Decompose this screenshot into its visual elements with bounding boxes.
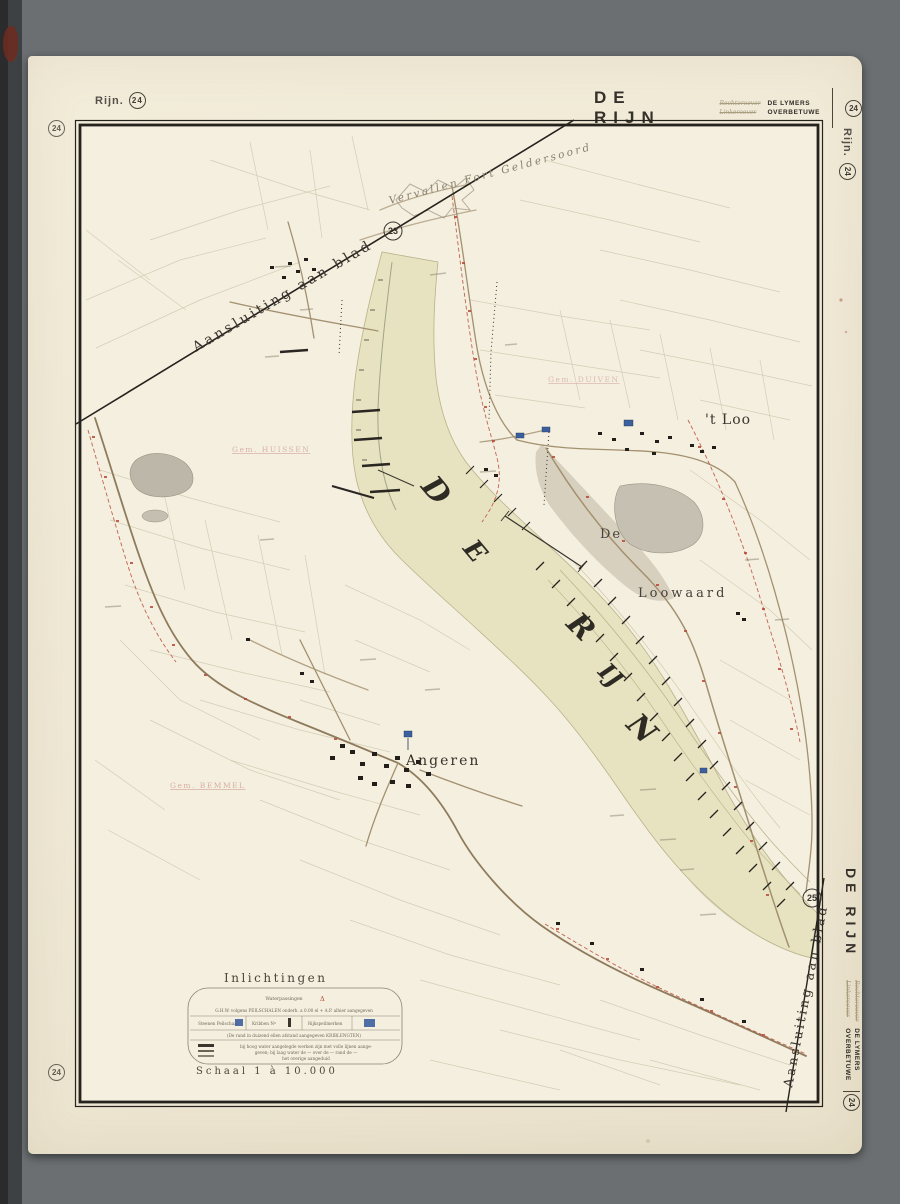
legend-row2: G.H.W. volgens PEILSCHALEN onderh. a 0.0… [215, 1008, 373, 1013]
legend-triangle-symbol: Δ [320, 995, 325, 1003]
place-label-de: De [600, 527, 622, 542]
map-canvas: Aansluiting aan blad 23 Aansluiting aan … [0, 0, 900, 1204]
municipality-label-duiven: Gem. DUIVEN [548, 375, 620, 384]
join-sheet-bottom-number: 25 [807, 893, 817, 903]
legend-line-sample [198, 1050, 214, 1052]
krib-symbol [288, 1018, 291, 1027]
map-interior [80, 125, 818, 1102]
place-label-angeren: Angeren [405, 753, 480, 769]
legend-row3-cell: Kribben Nº [252, 1021, 276, 1026]
legend-row4: het overige aangeduid [282, 1056, 330, 1061]
legend-row3-cell: Rijkspeilmerken [308, 1021, 343, 1026]
desk-background: Rijn. 24 DE RIJN Rechteroever DE LYMERS … [0, 0, 900, 1204]
legend-row4: geven; bij laag water de — over de — ran… [255, 1050, 358, 1055]
join-sheet-top-number: 23 [388, 226, 398, 236]
municipality-label-huissen: Gem. HUISSEN [232, 445, 310, 454]
legend-row3-note: (De rand in duizend ellen afstand aangeg… [227, 1033, 361, 1038]
legend-row4: bij hoog water aangelegde werken zijn me… [240, 1044, 373, 1049]
place-label-t-loo: 't Loo [705, 412, 751, 428]
legend-line-sample [198, 1044, 214, 1047]
gauge-symbol [235, 1019, 243, 1026]
legend-title: Inlichtingen [224, 971, 328, 985]
peilmerk-symbol [364, 1019, 375, 1027]
place-label-loowaard: Loowaard [638, 586, 727, 601]
scale-label: Schaal 1 à 10.000 [196, 1066, 338, 1077]
legend-row1: Waterpassingen [265, 996, 302, 1002]
municipality-label-bemmel: Gem. BEMMEL [170, 781, 246, 790]
legend-line-sample [198, 1055, 214, 1057]
legend-row3-cell: Steenen Peilschaal [198, 1021, 239, 1026]
